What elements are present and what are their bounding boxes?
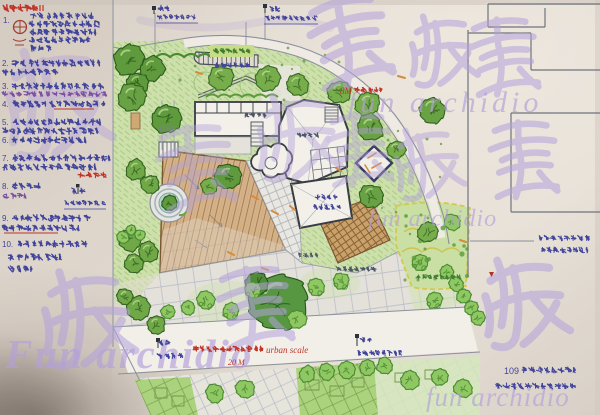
svg-text:1.: 1. bbox=[3, 16, 10, 25]
svg-text:10.: 10. bbox=[2, 240, 13, 249]
svg-text:7.: 7. bbox=[2, 154, 9, 163]
svg-text:8.: 8. bbox=[2, 182, 9, 191]
svg-text:6.: 6. bbox=[2, 136, 9, 145]
svg-text:urban scale: urban scale bbox=[266, 345, 308, 355]
svg-text:4.: 4. bbox=[2, 100, 9, 109]
svg-text:Fun archidio: Fun archidio bbox=[4, 331, 253, 377]
svg-text:3.: 3. bbox=[2, 82, 9, 91]
svg-text:16M: 16M bbox=[158, 124, 174, 133]
svg-text:8M: 8M bbox=[340, 86, 353, 96]
svg-text:5.: 5. bbox=[2, 118, 9, 127]
svg-text:109: 109 bbox=[504, 366, 519, 376]
svg-text:fun archidio: fun archidio bbox=[368, 206, 497, 232]
svg-text:9.: 9. bbox=[2, 214, 9, 223]
svg-text:2.: 2. bbox=[2, 59, 9, 68]
svg-text:20 M: 20 M bbox=[228, 358, 246, 367]
